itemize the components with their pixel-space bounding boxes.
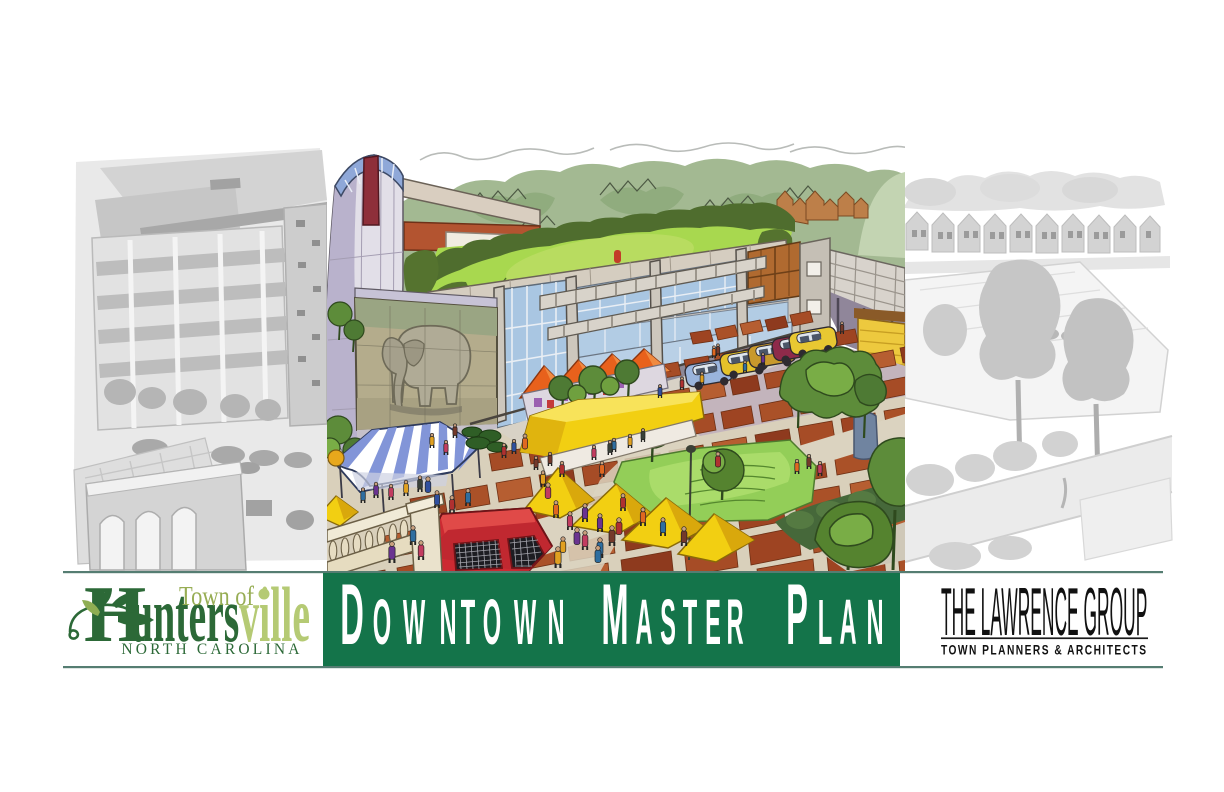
- svg-text:A: A: [635, 587, 652, 659]
- svg-text:M: M: [601, 566, 628, 663]
- svg-text:N: N: [439, 587, 456, 659]
- svg-text:S: S: [660, 587, 676, 659]
- svg-text:O: O: [483, 587, 501, 659]
- svg-text:N: N: [547, 587, 564, 659]
- svg-text:A: A: [839, 587, 856, 659]
- svg-text:W: W: [403, 587, 426, 659]
- svg-text:Town of: Town of: [179, 582, 255, 611]
- svg-text:O: O: [373, 587, 391, 659]
- svg-text:D: D: [340, 566, 364, 663]
- svg-text:NORTH CAROLINA: NORTH CAROLINA: [121, 641, 302, 658]
- svg-text:E: E: [705, 587, 721, 659]
- svg-text:R: R: [726, 587, 743, 659]
- svg-text:T: T: [683, 587, 697, 659]
- svg-text:P: P: [786, 566, 808, 663]
- svg-text:W: W: [514, 587, 537, 659]
- svg-text:T: T: [461, 587, 475, 659]
- svg-text:N: N: [866, 587, 883, 659]
- svg-text:L: L: [818, 587, 832, 659]
- svg-text:TOWN PLANNERS & ARCHITECTS: TOWN PLANNERS & ARCHITECTS: [941, 642, 1148, 658]
